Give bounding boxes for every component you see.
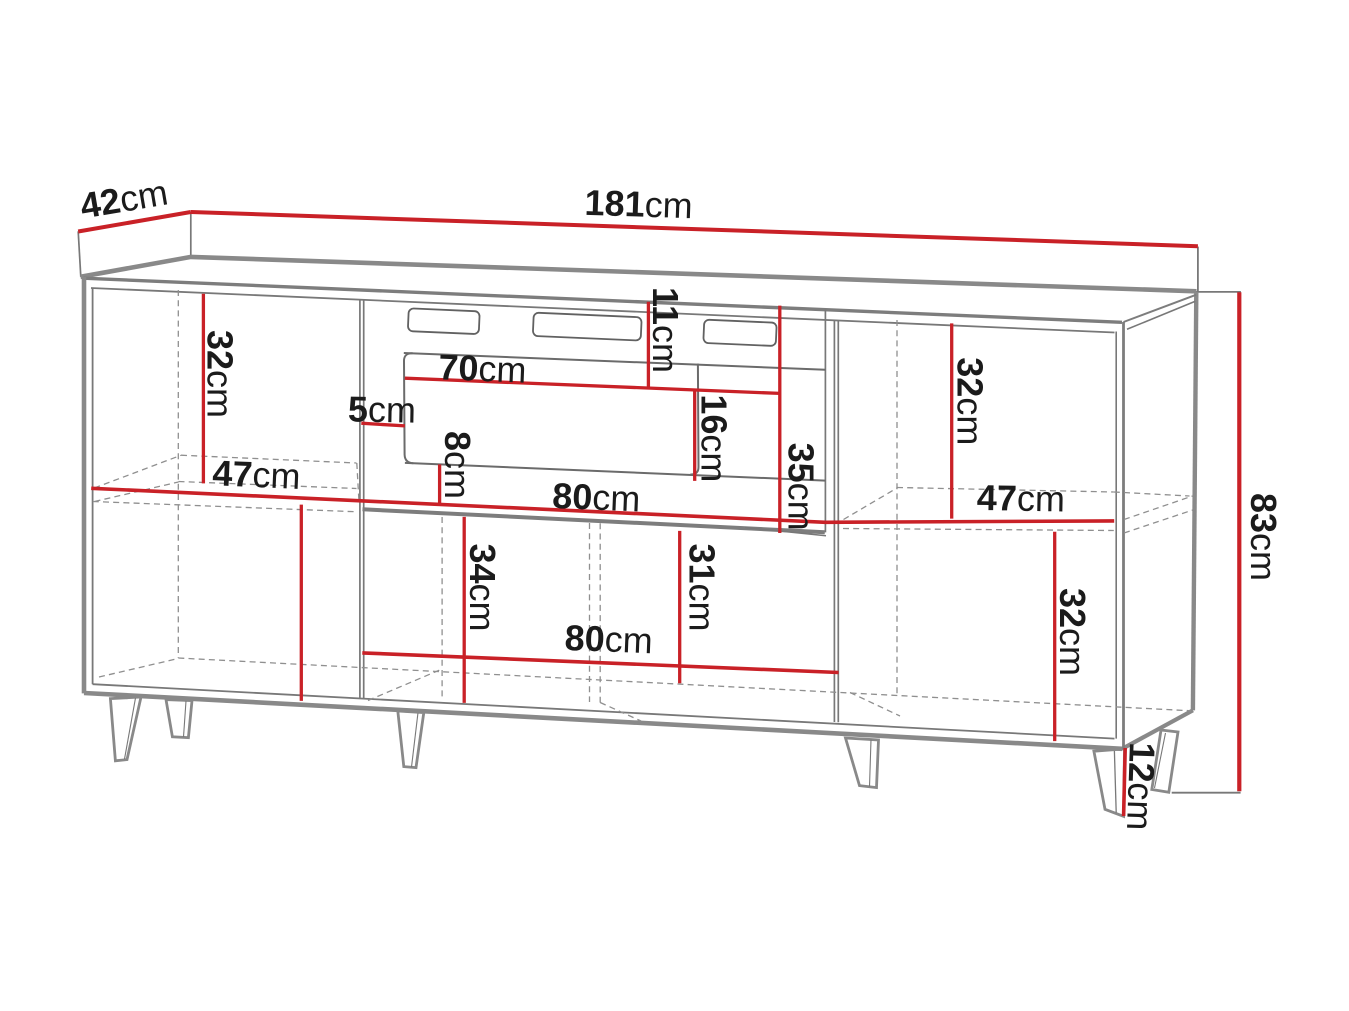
- svg-text:31cm: 31cm: [682, 543, 723, 631]
- svg-text:34cm: 34cm: [462, 543, 503, 631]
- svg-text:32cm: 32cm: [1052, 588, 1093, 676]
- svg-text:35cm: 35cm: [781, 443, 822, 531]
- svg-text:32cm: 32cm: [950, 357, 991, 445]
- svg-text:8cm: 8cm: [437, 431, 478, 499]
- svg-text:47cm: 47cm: [977, 477, 1066, 520]
- svg-text:5cm: 5cm: [348, 388, 417, 430]
- svg-text:80cm: 80cm: [564, 617, 654, 662]
- svg-text:70cm: 70cm: [438, 346, 528, 391]
- svg-text:83cm: 83cm: [1243, 493, 1284, 581]
- svg-text:12cm: 12cm: [1119, 742, 1163, 831]
- svg-text:11cm: 11cm: [645, 287, 686, 373]
- svg-text:16cm: 16cm: [694, 394, 735, 482]
- svg-text:80cm: 80cm: [552, 475, 642, 520]
- svg-text:181cm: 181cm: [584, 182, 693, 227]
- svg-text:47cm: 47cm: [212, 452, 302, 497]
- svg-text:32cm: 32cm: [200, 330, 241, 418]
